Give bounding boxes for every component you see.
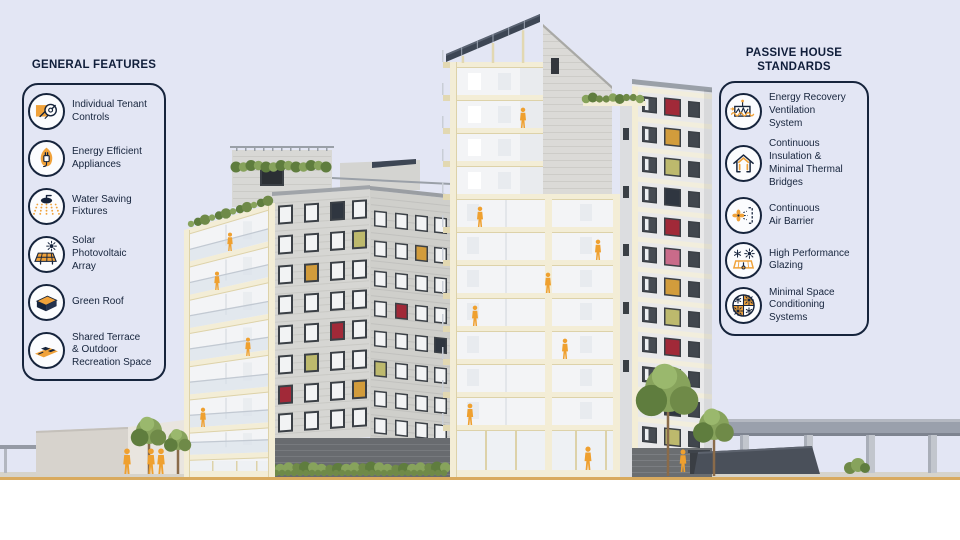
energy-recovery-ventilation-icon <box>725 93 762 130</box>
solar-photovoltaic-array-icon <box>28 236 65 273</box>
passive-house-panel: PASSIVE HOUSE STANDARDS Energy Recovery … <box>719 46 869 336</box>
feature-label: Minimal Space Conditioning Systems <box>769 287 835 325</box>
right-tower <box>632 79 712 477</box>
feature-label: Energy Efficient Appliances <box>72 146 142 172</box>
tenant-controls-icon <box>28 93 65 130</box>
general-features-panel: GENERAL FEATURES Individual Tenant Contr… <box>22 58 166 381</box>
green-roof-icon <box>28 284 65 321</box>
feature-label: High Performance Glazing <box>769 248 850 274</box>
passive-house-box: Energy Recovery Ventilation SystemContin… <box>719 81 869 336</box>
general-features-box: Individual Tenant ControlsEnergy Efficie… <box>22 83 166 381</box>
feature-label: Continuous Insulation & Minimal Thermal … <box>769 138 843 189</box>
feature-label: Green Roof <box>72 296 124 309</box>
shared-terrace-icon <box>28 332 65 369</box>
feature-label: Solar Photovoltaic Array <box>72 235 126 273</box>
minimal-space-conditioning-icon <box>725 287 762 324</box>
general-features-title: GENERAL FEATURES <box>22 58 166 72</box>
feature-item: Water Saving Fixtures <box>28 188 160 225</box>
feature-item: Continuous Air Barrier <box>725 197 863 234</box>
mid-rise-masonry <box>272 185 452 452</box>
feature-label: Shared Terrace & Outdoor Recreation Spac… <box>72 332 152 370</box>
passive-house-title: PASSIVE HOUSE STANDARDS <box>719 46 869 74</box>
feature-item: Green Roof <box>28 284 160 321</box>
feature-item: High Performance Glazing <box>725 242 863 279</box>
continuous-insulation-icon <box>725 145 762 182</box>
feature-item: Energy Efficient Appliances <box>28 140 160 177</box>
energy-efficient-appliances-icon <box>28 140 65 177</box>
high-performance-glazing-icon <box>725 242 762 279</box>
feature-label: Individual Tenant Controls <box>72 99 147 125</box>
feature-item: Continuous Insulation & Minimal Thermal … <box>725 138 863 189</box>
feature-label: Continuous Air Barrier <box>769 203 820 229</box>
continuous-air-barrier-icon <box>725 197 762 234</box>
feature-item: Shared Terrace & Outdoor Recreation Spac… <box>28 332 160 370</box>
feature-label: Water Saving Fixtures <box>72 194 132 220</box>
right-tower-side <box>620 96 632 477</box>
feature-item: Individual Tenant Controls <box>28 93 160 130</box>
water-saving-fixtures-icon <box>28 188 65 225</box>
feature-item: Minimal Space Conditioning Systems <box>725 287 863 325</box>
feature-label: Energy Recovery Ventilation System <box>769 92 846 130</box>
feature-item: Solar Photovoltaic Array <box>28 235 160 273</box>
feature-item: Energy Recovery Ventilation System <box>725 92 863 130</box>
